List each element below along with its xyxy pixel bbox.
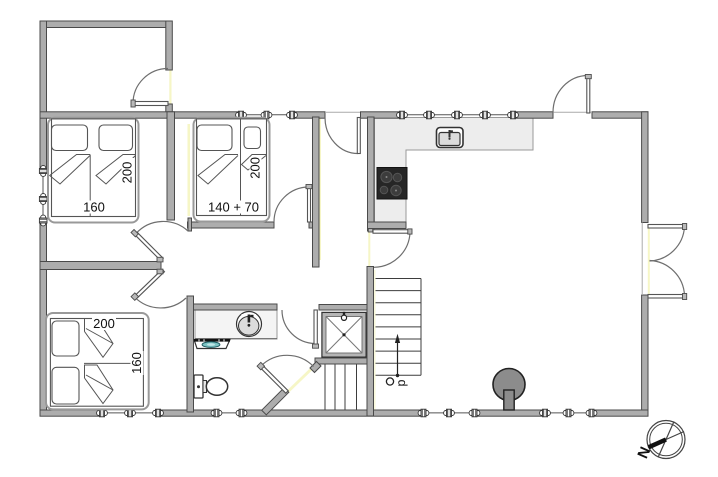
- svg-text:200: 200: [93, 316, 115, 331]
- svg-text:160: 160: [129, 352, 144, 374]
- svg-text:200: 200: [248, 157, 263, 179]
- svg-text:160: 160: [83, 200, 105, 215]
- svg-text:200: 200: [120, 162, 135, 184]
- svg-text:p: p: [394, 380, 408, 387]
- svg-text:140 + 70: 140 + 70: [208, 200, 259, 215]
